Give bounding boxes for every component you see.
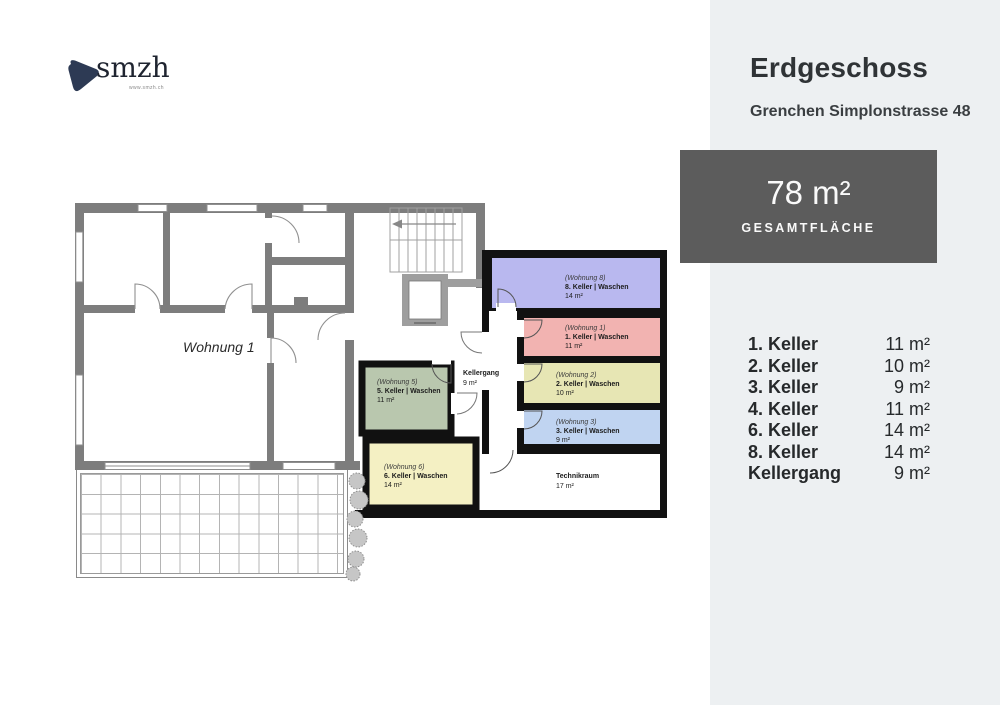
svg-text:2. Keller | Waschen: 2. Keller | Waschen bbox=[556, 381, 620, 388]
elevator bbox=[402, 274, 485, 326]
total-area-box: 78 m² GESAMTFLÄCHE bbox=[680, 150, 937, 263]
room-keller-3 bbox=[524, 410, 660, 444]
svg-text:17 m²: 17 m² bbox=[556, 483, 575, 490]
windows bbox=[76, 205, 354, 470]
kellergang-corridor bbox=[489, 311, 517, 454]
list-item: Kellergang 9 m² bbox=[748, 463, 930, 485]
room-list: 1. Keller 11 m² 2. Keller 10 m² 3. Kelle… bbox=[748, 334, 930, 485]
svg-text:(Wohnung 3): (Wohnung 3) bbox=[556, 419, 596, 426]
svg-text:(Wohnung 2): (Wohnung 2) bbox=[556, 372, 596, 379]
list-item: 6. Keller 14 m² bbox=[748, 420, 930, 442]
svg-text:9 m²: 9 m² bbox=[463, 380, 478, 387]
room-keller-5 bbox=[362, 364, 451, 433]
svg-text:9 m²: 9 m² bbox=[556, 437, 571, 444]
svg-text:1. Keller | Waschen: 1. Keller | Waschen bbox=[565, 334, 629, 341]
staircase bbox=[390, 208, 462, 272]
address-subtitle: Grenchen Simplonstrasse 48 bbox=[750, 103, 971, 121]
list-item: 1. Keller 11 m² bbox=[748, 334, 930, 356]
list-item: 8. Keller 14 m² bbox=[748, 442, 930, 464]
svg-text:6. Keller | Waschen: 6. Keller | Waschen bbox=[384, 473, 448, 480]
svg-text:14 m²: 14 m² bbox=[384, 482, 403, 489]
total-area-label: GESAMTFLÄCHE bbox=[680, 221, 937, 235]
list-item: 3. Keller 9 m² bbox=[748, 377, 930, 399]
floorplan: Wohnung 1 (Wohnung 8) 8. Keller | Wasche… bbox=[0, 0, 710, 705]
svg-text:8. Keller | Waschen: 8. Keller | Waschen bbox=[565, 284, 629, 291]
info-panel: Erdgeschoss Grenchen Simplonstrasse 48 7… bbox=[710, 0, 1000, 705]
list-item: 4. Keller 11 m² bbox=[748, 399, 930, 421]
svg-text:(Wohnung 5): (Wohnung 5) bbox=[377, 379, 417, 386]
svg-text:Kellergang: Kellergang bbox=[463, 370, 499, 377]
apartment-label: Wohnung 1 bbox=[183, 339, 255, 355]
list-item: 2. Keller 10 m² bbox=[748, 356, 930, 378]
stair-arrow-icon bbox=[392, 220, 456, 229]
total-area-value: 78 m² bbox=[680, 174, 937, 212]
svg-text:5. Keller | Waschen: 5. Keller | Waschen bbox=[377, 388, 441, 395]
svg-text:10 m²: 10 m² bbox=[556, 390, 575, 397]
room-keller-8 bbox=[492, 258, 660, 308]
technikraum-room bbox=[489, 454, 660, 510]
svg-text:(Wohnung 8): (Wohnung 8) bbox=[565, 275, 605, 282]
svg-text:(Wohnung 6): (Wohnung 6) bbox=[384, 464, 424, 471]
svg-text:(Wohnung 1): (Wohnung 1) bbox=[565, 325, 605, 332]
svg-text:11 m²: 11 m² bbox=[565, 343, 583, 350]
svg-text:14 m²: 14 m² bbox=[565, 293, 584, 300]
svg-text:11 m²: 11 m² bbox=[377, 397, 395, 404]
svg-text:3. Keller | Waschen: 3. Keller | Waschen bbox=[556, 428, 620, 435]
page-title: Erdgeschoss bbox=[750, 52, 928, 84]
svg-text:Technikraum: Technikraum bbox=[556, 473, 599, 480]
